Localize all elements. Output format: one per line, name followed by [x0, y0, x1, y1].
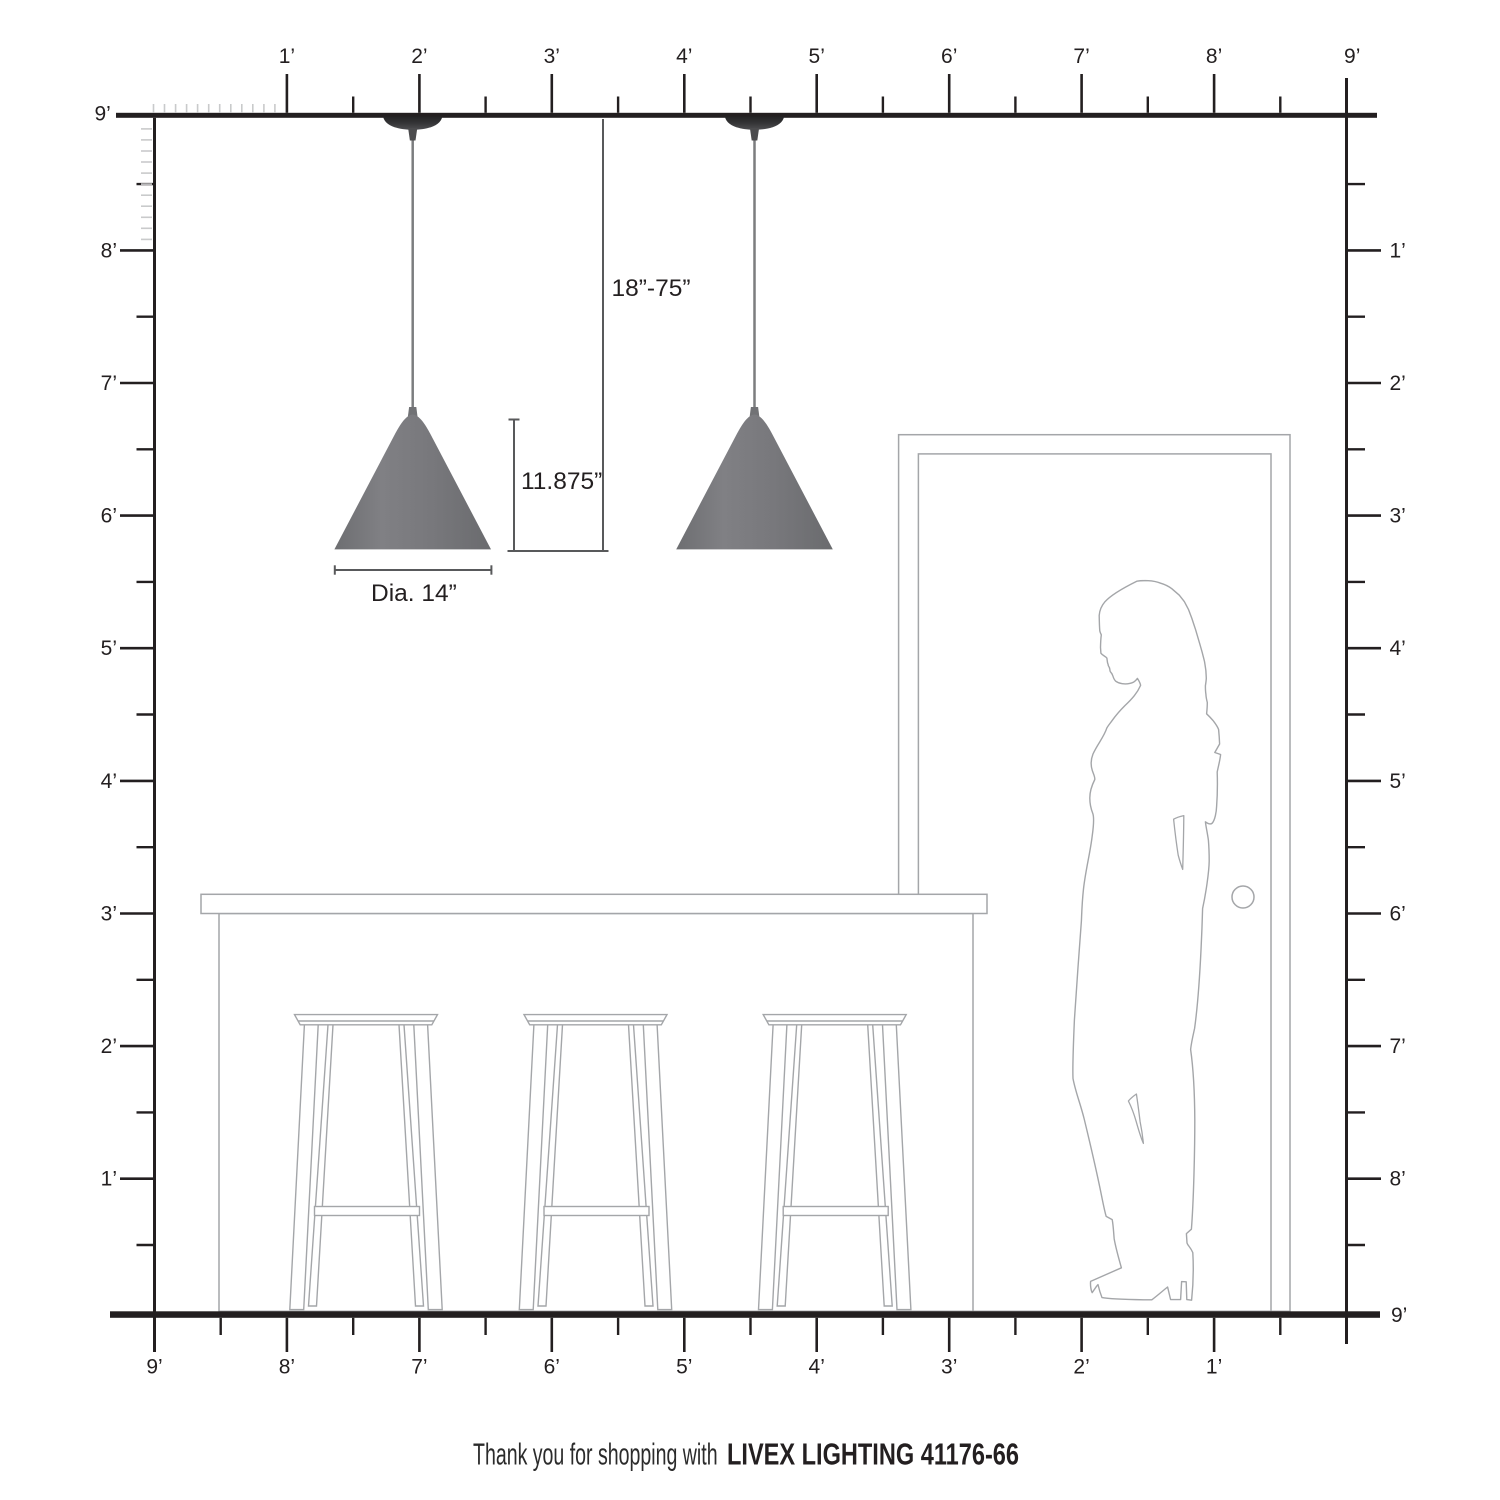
svg-text:11.875”: 11.875” [521, 468, 602, 495]
svg-text:3’: 3’ [101, 903, 117, 926]
svg-text:6’: 6’ [941, 45, 957, 68]
svg-text:4’: 4’ [101, 770, 117, 793]
svg-text:2’: 2’ [101, 1035, 117, 1058]
svg-text:5’: 5’ [1390, 770, 1406, 793]
svg-text:3’: 3’ [1390, 505, 1406, 528]
svg-text:2’: 2’ [1390, 372, 1406, 395]
svg-text:8’: 8’ [279, 1356, 295, 1379]
svg-text:3’: 3’ [941, 1356, 957, 1379]
svg-text:5’: 5’ [676, 1356, 692, 1379]
svg-text:Dia. 14”: Dia. 14” [371, 580, 457, 607]
svg-text:7’: 7’ [101, 372, 117, 395]
svg-text:8’: 8’ [1206, 45, 1222, 68]
svg-text:8’: 8’ [1390, 1168, 1406, 1191]
svg-text:9’: 9’ [95, 103, 111, 126]
svg-text:5’: 5’ [101, 637, 117, 660]
svg-text:4’: 4’ [809, 1356, 825, 1379]
svg-text:1’: 1’ [1206, 1356, 1222, 1379]
svg-text:8’: 8’ [101, 239, 117, 262]
svg-text:LIVEX LIGHTING 41176-66: LIVEX LIGHTING 41176-66 [727, 1437, 1019, 1472]
svg-text:6’: 6’ [101, 505, 117, 528]
svg-text:4’: 4’ [676, 45, 692, 68]
svg-text:2’: 2’ [1073, 1356, 1089, 1379]
svg-text:7’: 7’ [411, 1356, 427, 1379]
svg-text:2’: 2’ [411, 45, 427, 68]
svg-text:18”-75”: 18”-75” [612, 275, 691, 302]
svg-text:5’: 5’ [809, 45, 825, 68]
svg-text:6’: 6’ [544, 1356, 560, 1379]
svg-text:7’: 7’ [1390, 1035, 1406, 1058]
svg-text:7’: 7’ [1073, 45, 1089, 68]
svg-text:6’: 6’ [1390, 903, 1406, 926]
svg-text:9’: 9’ [146, 1356, 162, 1379]
svg-text:9’: 9’ [1344, 45, 1360, 68]
svg-text:1’: 1’ [1390, 239, 1406, 262]
svg-text:4’: 4’ [1390, 637, 1406, 660]
svg-text:3’: 3’ [544, 45, 560, 68]
svg-text:1’: 1’ [279, 45, 295, 68]
svg-text:Thank you for shopping with: Thank you for shopping with [473, 1437, 723, 1472]
svg-text:1’: 1’ [101, 1168, 117, 1191]
svg-text:9’: 9’ [1391, 1304, 1407, 1327]
